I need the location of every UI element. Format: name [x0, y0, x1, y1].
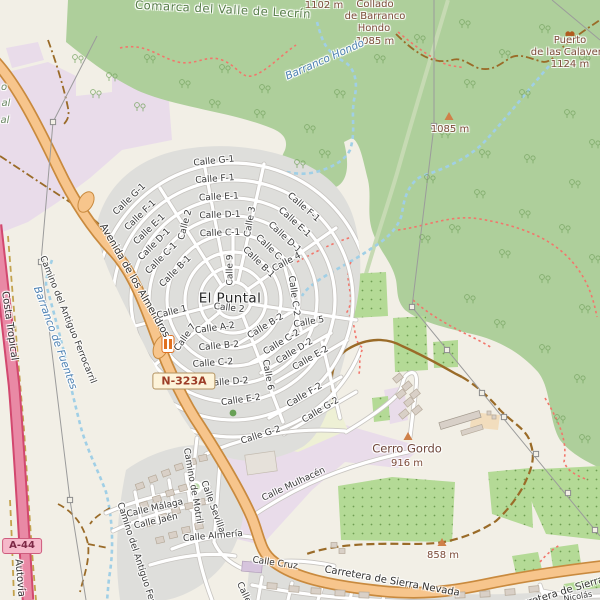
- street-label: Calle D-1: [199, 211, 240, 221]
- pass-label-line: Hondo: [358, 24, 390, 34]
- clipped-label-fragment: al: [2, 99, 11, 109]
- elevation-label: 858 m: [427, 551, 459, 561]
- road-ref-badge-n323a: N-323A: [152, 373, 215, 390]
- pass-label-line: de Barranco: [345, 12, 406, 22]
- clipped-label-fragment: al: [1, 116, 10, 126]
- street-label: Calle 9: [227, 255, 236, 286]
- elevation-label: 916 m: [391, 459, 423, 469]
- road-label-autovia: Autovía: [12, 559, 25, 598]
- road-ref-badge-a44: A-44: [2, 538, 42, 554]
- warehouse-building: [245, 451, 277, 475]
- tree-icon-single: [230, 410, 237, 417]
- clipped-label-fragment: o: [1, 83, 7, 93]
- pass-label-line: 1124 m: [551, 60, 589, 70]
- pass-label-line: Collado: [356, 0, 393, 10]
- pass-label-line: de las Calaveras: [531, 48, 600, 58]
- pass-label-line: Puerto: [554, 36, 587, 46]
- map-canvas[interactable]: Comarca del Valle de Lecrín 1102 m Colla…: [0, 0, 600, 600]
- elevation-label: 1102 m: [305, 1, 343, 11]
- elevation-label: 1085 m: [431, 125, 469, 135]
- map-base-layer: [0, 0, 600, 600]
- peak-name-label: Cerro Gordo: [372, 443, 442, 455]
- street-label: Calle C-1: [200, 229, 241, 239]
